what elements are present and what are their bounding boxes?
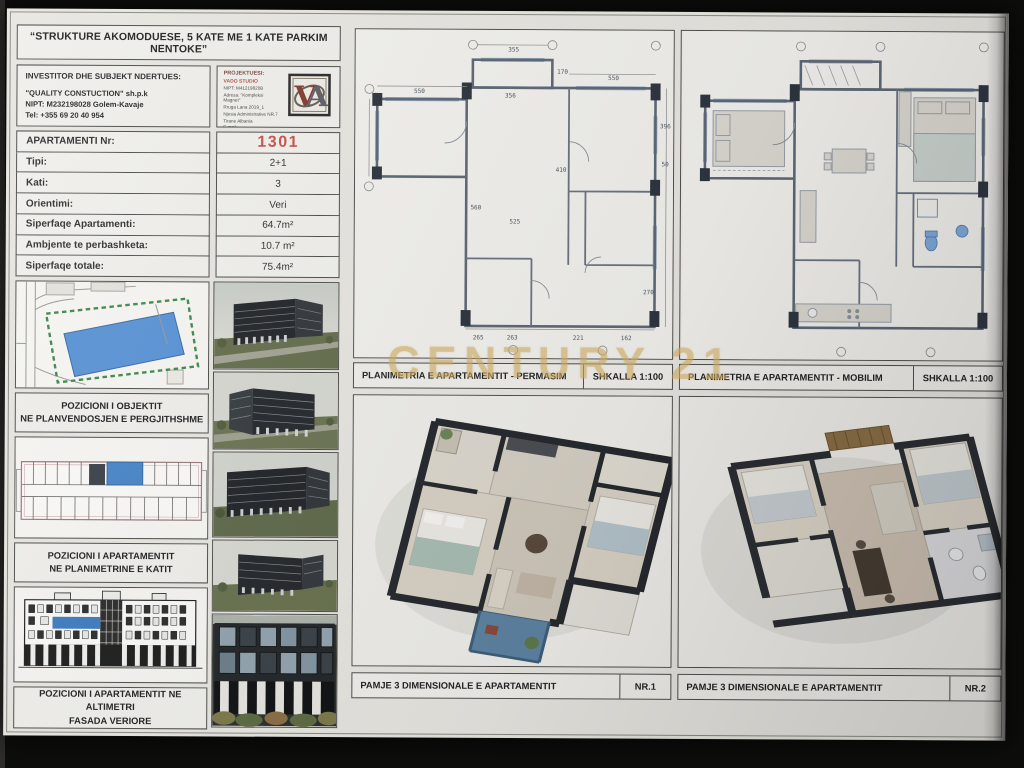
table-row-label: Kati: [16,173,210,195]
row-label: Ambjente te perbashketa: [17,239,148,251]
row-value: 2+1 [217,158,339,170]
facade-drawing [14,587,206,682]
caption-line: POZICIONI I OBJEKTIT [61,400,162,414]
site-caption: POZICIONI I OBJEKTIT NE PLANVENDOSJEN E … [15,392,209,433]
svg-text:A: A [305,80,329,113]
table-row-label: Ambjente te perbashketa: [16,235,210,257]
facade-elevation [13,586,207,683]
designer-line: E-mail: v.hoxha@metba.studio [223,125,281,127]
table-row-label: APARTAMENTI Nr: [16,130,210,153]
table-row-value: 75.4m² [216,257,340,278]
sheet-title: “STRUKTURE AKOMODUESE, 5 KATE ME 1 KATE … [17,24,341,61]
axon-view-2-panel [677,396,1002,670]
view2-title: PAMJE 3 DIMENSIONALE E APARTAMENTIT [678,675,949,700]
view1-number: NR.1 [619,675,670,699]
plan-permasim-panel: 5503551703565503965056041052526526322116… [353,28,675,360]
row-label: Siperfaqe totale: [17,260,104,271]
designer-line: NIPT: M41219820B [223,86,281,92]
facade-caption: POZICIONI I APARTAMENTIT NE ALTIMETRI FA… [13,686,207,729]
mobilim-title: PLANIMETRIA E APARTAMENTIT - MOBILIM [680,365,913,390]
table-row-value: Veri [216,195,340,216]
plan-mobilim-panel [679,30,1005,362]
view2-caption-bar: PAMJE 3 DIMENSIONALE E APARTAMENTIT NR.2 [677,674,1001,702]
table-row-value: 64.7m² [216,215,340,236]
row-label: Tipi: [17,157,47,168]
table-row-value: 2+1 [216,153,340,174]
designer-line: Tirane Albania [223,118,281,124]
apartment-highlight-blue [107,462,143,485]
caption-line: POZICIONI I APARTAMENTIT NE ALTIMETRI [14,688,206,715]
floor-key-plan [14,436,209,539]
building-render-4 [212,539,338,612]
investor-block: INVESTITOR DHE SUBJEKT NDERTUES: "QUALIT… [16,64,210,127]
investor-tel: Tel: +355 69 20 40 954 [25,110,201,120]
building-render-2 [213,371,339,450]
designer-line: Njesia Administrative NR.7 [223,111,281,117]
table-row-value: 3 [216,174,340,195]
apartment-number: 1301 [217,133,339,152]
apartment-table-labels: APARTAMENTI Nr: Tipi: Kati: Orientimi: S… [16,130,211,277]
designer-line: Rruga Lana 2019_1 [223,105,281,111]
caption-line: POZICIONI I APARTAMENTIT [48,550,175,564]
row-label: Siperfaqe Apartamenti: [17,219,136,231]
caption-line: FASADA VERIORE [69,714,151,727]
table-row-value: 10.7 m² [216,236,340,257]
table-row-label: Siperfaqe totale: [16,256,210,278]
view1-title: PAMJE 3 DIMENSIONALE E APARTAMENTIT [352,673,619,698]
plan-sheet: “STRUKTURE AKOMODUESE, 5 KATE ME 1 KATE … [3,8,1009,740]
site-plan [15,280,210,389]
designer-line: Adresa: "Kompleksi Magnet" [223,92,281,104]
row-value: 3 [217,178,339,190]
investor-nipt: NIPT: M232198028 Golem-Kavaje [25,99,201,109]
designer-name: VADO STUDIO [224,79,282,85]
table-row-value: 1301 [216,131,340,153]
va-logo: V A [287,73,331,117]
axon-view-1-panel [351,394,672,668]
apartment-highlight-facade [52,617,100,629]
row-label: APARTAMENTI Nr: [17,136,115,148]
building-render-3 [212,451,338,538]
mobilim-caption-bar: PLANIMETRIA E APARTAMENTIT - MOBILIM SHK… [679,364,1003,392]
building-render-1 [213,281,339,370]
investor-heading: INVESTITOR DHE SUBJEKT NDERTUES: [26,71,202,81]
page-curl-shadow [983,14,1009,741]
facade-closeup-render [211,613,338,728]
apartment-table-values: 1301 2+1 3 Veri 64.7m² 10.7 m² 75.4m² [216,131,341,278]
designer-block: PROJEKTUESI: VADO STUDIO NIPT: M41219820… [216,65,340,128]
view1-caption-bar: PAMJE 3 DIMENSIONALE E APARTAMENTIT NR.1 [351,672,671,700]
site-plan-drawing [16,281,209,388]
permasim-scale: SHKALLA 1:100 [583,364,672,388]
floor-caption: POZICIONI I APARTAMENTIT NE PLANIMETRINE… [14,542,208,583]
row-value: 10.7 m² [217,240,339,252]
row-value: 64.7m² [217,220,339,232]
caption-line: NE PLANVENDOSJEN E PERGJITHSHME [20,412,203,426]
investor-company: "QUALITY CONSTUCTION" sh.p.k [25,88,201,98]
plan-permasim-drawing [354,29,674,359]
row-label: Orientimi: [17,198,73,209]
permasim-title: PLANIMETRIA E APARTAMENTIT - PERMASIM [354,363,583,388]
row-label: Kati: [17,177,48,188]
table-row-label: Orientimi: [16,194,210,216]
permasim-caption-bar: PLANIMETRIA E APARTAMENTIT - PERMASIM SH… [353,362,673,390]
designer-heading: PROJEKTUESI: [224,71,282,77]
caption-line: NE PLANIMETRINE E KATIT [49,563,172,577]
table-row-label: Tipi: [16,152,210,174]
axon-view-1-drawing [352,395,671,667]
floor-key-drawing [15,437,208,538]
plan-mobilim-drawing [680,31,1004,361]
stair-core [89,464,105,485]
table-row-label: Siperfaqe Apartamenti: [16,214,210,236]
row-value: Veri [217,199,339,211]
row-value: 75.4m² [217,261,339,273]
axon-view-2-drawing [678,397,1001,669]
